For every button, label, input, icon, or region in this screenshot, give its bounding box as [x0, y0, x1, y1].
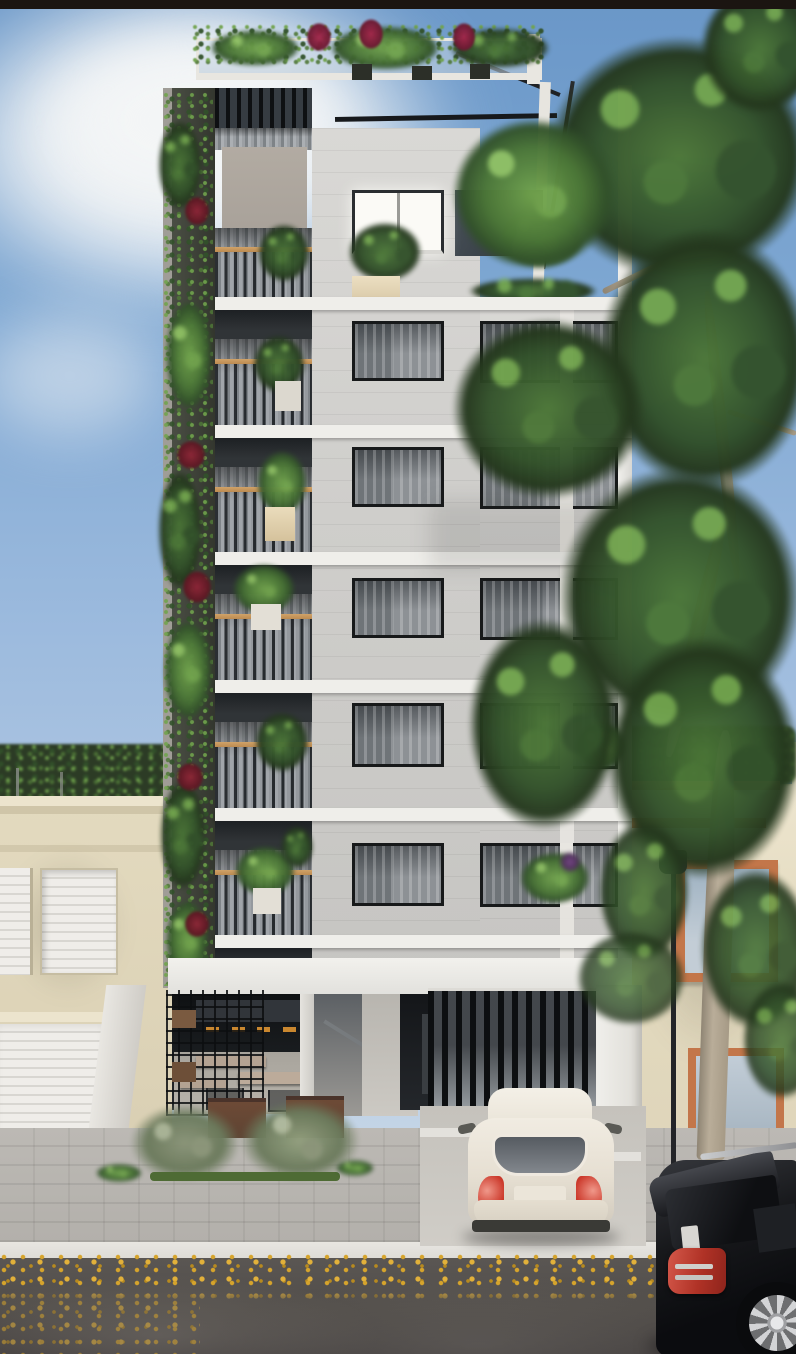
tree-canopy: [468, 618, 620, 830]
tree-canopy: [452, 118, 616, 270]
fallen-leaves: [0, 1300, 200, 1354]
curtained-window: [352, 321, 444, 381]
balcony-floor: [215, 680, 312, 808]
shutter-window: [40, 868, 118, 975]
red-bromeliad: [184, 196, 210, 226]
planter-box: [412, 66, 432, 80]
grass-tuft: [336, 1160, 374, 1176]
suv-alloy-wheel: [749, 1295, 796, 1351]
floor-slab: [215, 935, 632, 948]
flower-pot: [560, 852, 580, 872]
wood-box: [172, 1062, 196, 1082]
magenta-flowers: [452, 22, 476, 52]
red-bromeliad: [182, 570, 212, 604]
plant-pot: [253, 888, 281, 914]
grass-strip: [150, 1172, 340, 1181]
plant-pot: [265, 507, 295, 541]
red-bromeliad: [176, 440, 206, 470]
plant-pot: [251, 604, 281, 630]
suv-side-glass: [753, 1203, 796, 1252]
plant-pot: [275, 381, 301, 411]
wood-box: [172, 1010, 196, 1028]
magenta-flowers: [306, 22, 332, 52]
balcony-plant: [348, 222, 422, 282]
suv-taillight: [668, 1248, 726, 1294]
bar-stool: [283, 1027, 296, 1032]
shutter-window: [0, 868, 33, 975]
balcony-plant: [258, 224, 310, 282]
planter-box: [352, 64, 372, 80]
curtained-window: [352, 447, 444, 507]
red-bromeliad: [184, 910, 210, 938]
balcony-floor: [215, 808, 312, 935]
car-lower-trim: [472, 1220, 610, 1232]
balcony-floor: [215, 552, 312, 680]
curtained-window: [352, 843, 444, 906]
balcony-floor: [215, 297, 312, 425]
left-house-ledge: [0, 806, 172, 814]
top-frame-bar: [0, 0, 796, 9]
setback-volume: [222, 147, 307, 228]
red-bromeliad: [176, 762, 204, 792]
magenta-flowers: [358, 18, 384, 50]
left-house-cornice: [0, 796, 172, 806]
balcony-floor: [215, 425, 312, 552]
planter-box: [470, 64, 490, 79]
architectural-render: [0, 0, 796, 1354]
tree-canopy: [576, 930, 686, 1026]
curtained-window: [352, 578, 444, 638]
tree-canopy: [452, 318, 644, 500]
roof-railing: [215, 88, 312, 130]
grass-tuft: [96, 1164, 142, 1182]
planter-bush: [130, 1104, 240, 1182]
car-rear-window: [492, 1134, 588, 1176]
curtained-window: [352, 703, 444, 767]
